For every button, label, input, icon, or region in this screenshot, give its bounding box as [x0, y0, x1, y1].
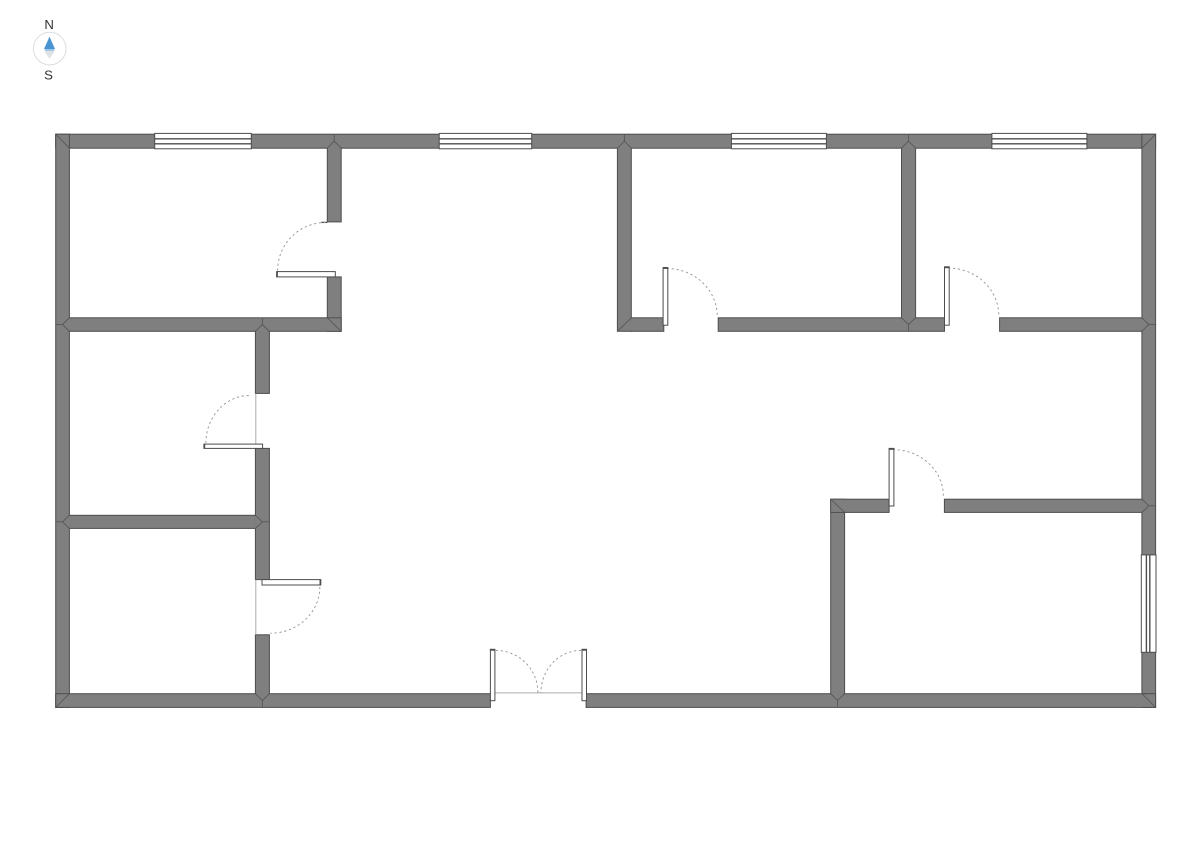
- svg-text:S: S: [44, 67, 53, 82]
- svg-text:N: N: [44, 17, 54, 32]
